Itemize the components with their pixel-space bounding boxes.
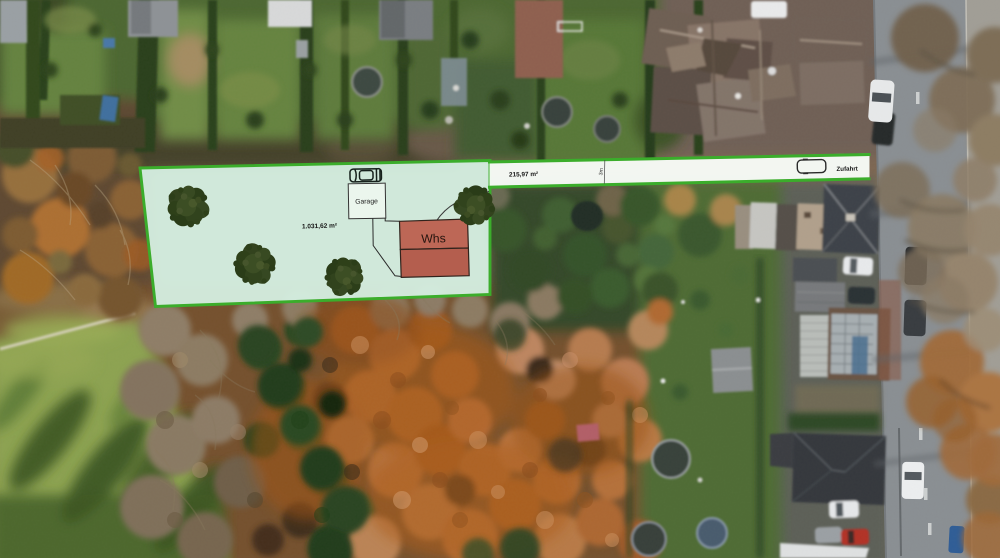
svg-text:215,97 m²: 215,97 m²: [509, 171, 538, 179]
svg-text:3m: 3m: [598, 168, 605, 176]
svg-text:1.031,62 m²: 1.031,62 m²: [302, 223, 338, 231]
svg-text:Zufahrt: Zufahrt: [836, 166, 857, 173]
svg-text:Garage: Garage: [355, 198, 378, 205]
svg-text:Whs: Whs: [421, 231, 446, 246]
